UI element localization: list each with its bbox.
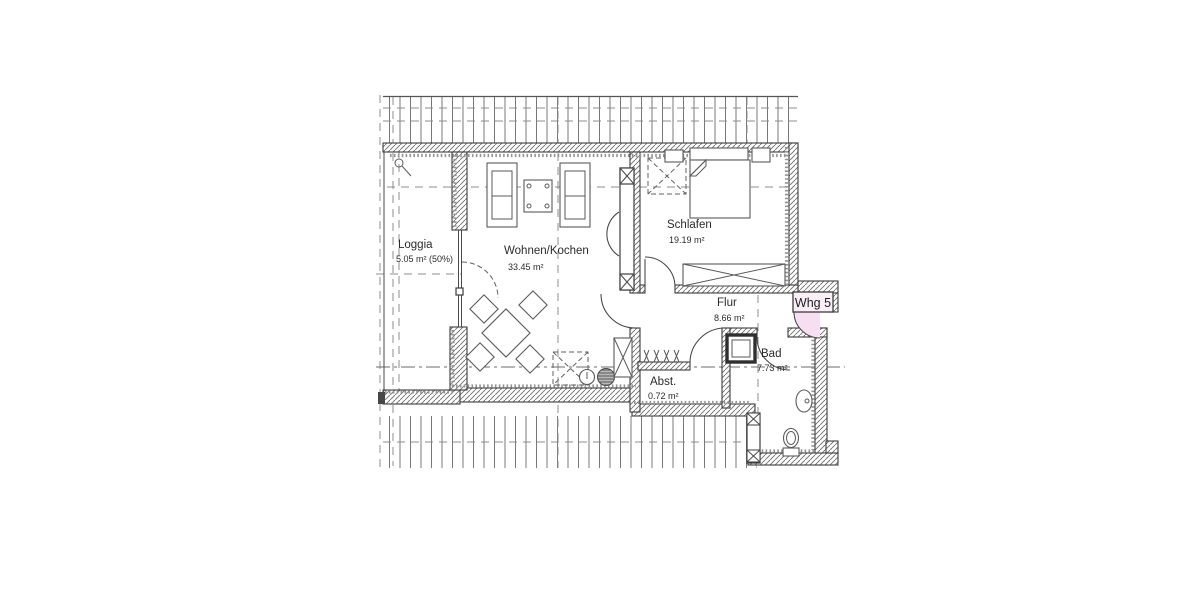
roof-band-bottom: [383, 416, 757, 468]
wall-entry-top: [798, 281, 838, 293]
radiator-icon: [644, 350, 679, 362]
wardrobe-icon: [683, 264, 785, 286]
wall-abst-top: [638, 362, 690, 370]
nightstand-icon: [665, 150, 683, 162]
coffee-table-icon: [524, 180, 552, 212]
room-area-bad: 7.73 m²: [757, 363, 788, 373]
chimney-post: [607, 168, 634, 290]
room-label-schlafen: Schlafen: [667, 219, 712, 231]
wall-right-schlafen: [789, 143, 798, 293]
bed-icon: [690, 148, 770, 218]
wall-loggia-corner-block: [378, 392, 385, 404]
armchair-right-icon: [560, 163, 590, 227]
roof-band-top: [383, 97, 798, 144]
room-abstellraum: Abst. 0.72 m²: [644, 350, 679, 401]
room-label-abst: Abst.: [650, 376, 676, 388]
floor-plan-page: Whg 5 Loggia 5.05 m² (50%): [0, 0, 1200, 600]
washbasin-icon: [796, 390, 812, 412]
schlafen-door-arc: [645, 257, 675, 287]
loggia-door-arc: [462, 262, 498, 298]
room-schlafen: Schlafen 19.19 m²: [648, 148, 785, 286]
wall-schlafen-bottom-a: [640, 285, 645, 293]
unit-label: Whg 5: [795, 296, 831, 310]
kitchen-hob-icon: [598, 369, 615, 386]
wall-bottom-main: [450, 388, 638, 402]
room-flur: Flur 8.66 m²: [714, 297, 745, 323]
room-area-loggia: 5.05 m² (50%): [396, 254, 453, 264]
loggia-glazing: [456, 230, 463, 327]
room-wohnen-kochen: Wohnen/Kochen 33.45 m²: [466, 163, 632, 386]
wall-right-bad: [815, 328, 827, 465]
room-label-bad: Bad: [761, 348, 781, 360]
bad-window-post: [747, 413, 760, 463]
shower-icon: [727, 335, 755, 362]
schlafen-skylight-icon: [648, 158, 686, 194]
armchair-left-icon: [487, 163, 517, 227]
floor-plan-canvas: Whg 5 Loggia 5.05 m² (50%): [0, 0, 1200, 600]
room-area-wohnen: 33.45 m²: [508, 262, 544, 272]
wohnen-door-arc: [601, 294, 635, 328]
room-label-flur: Flur: [717, 297, 737, 309]
abst-door-arc: [690, 328, 725, 363]
room-label-wohnen: Wohnen/Kochen: [504, 245, 589, 257]
wall-bad-step: [826, 441, 838, 453]
room-area-flur: 8.66 m²: [714, 313, 745, 323]
room-area-abst: 0.72 m²: [648, 391, 679, 401]
room-loggia: Loggia 5.05 m² (50%): [395, 159, 453, 264]
kitchen-tall-unit-icon: [614, 338, 632, 377]
room-label-loggia: Loggia: [398, 239, 433, 251]
toilet-icon: [783, 429, 799, 457]
dining-table-icon: [466, 291, 547, 373]
wall-bottom-abst: [632, 404, 755, 416]
room-area-schlafen: 19.19 m²: [669, 235, 705, 245]
